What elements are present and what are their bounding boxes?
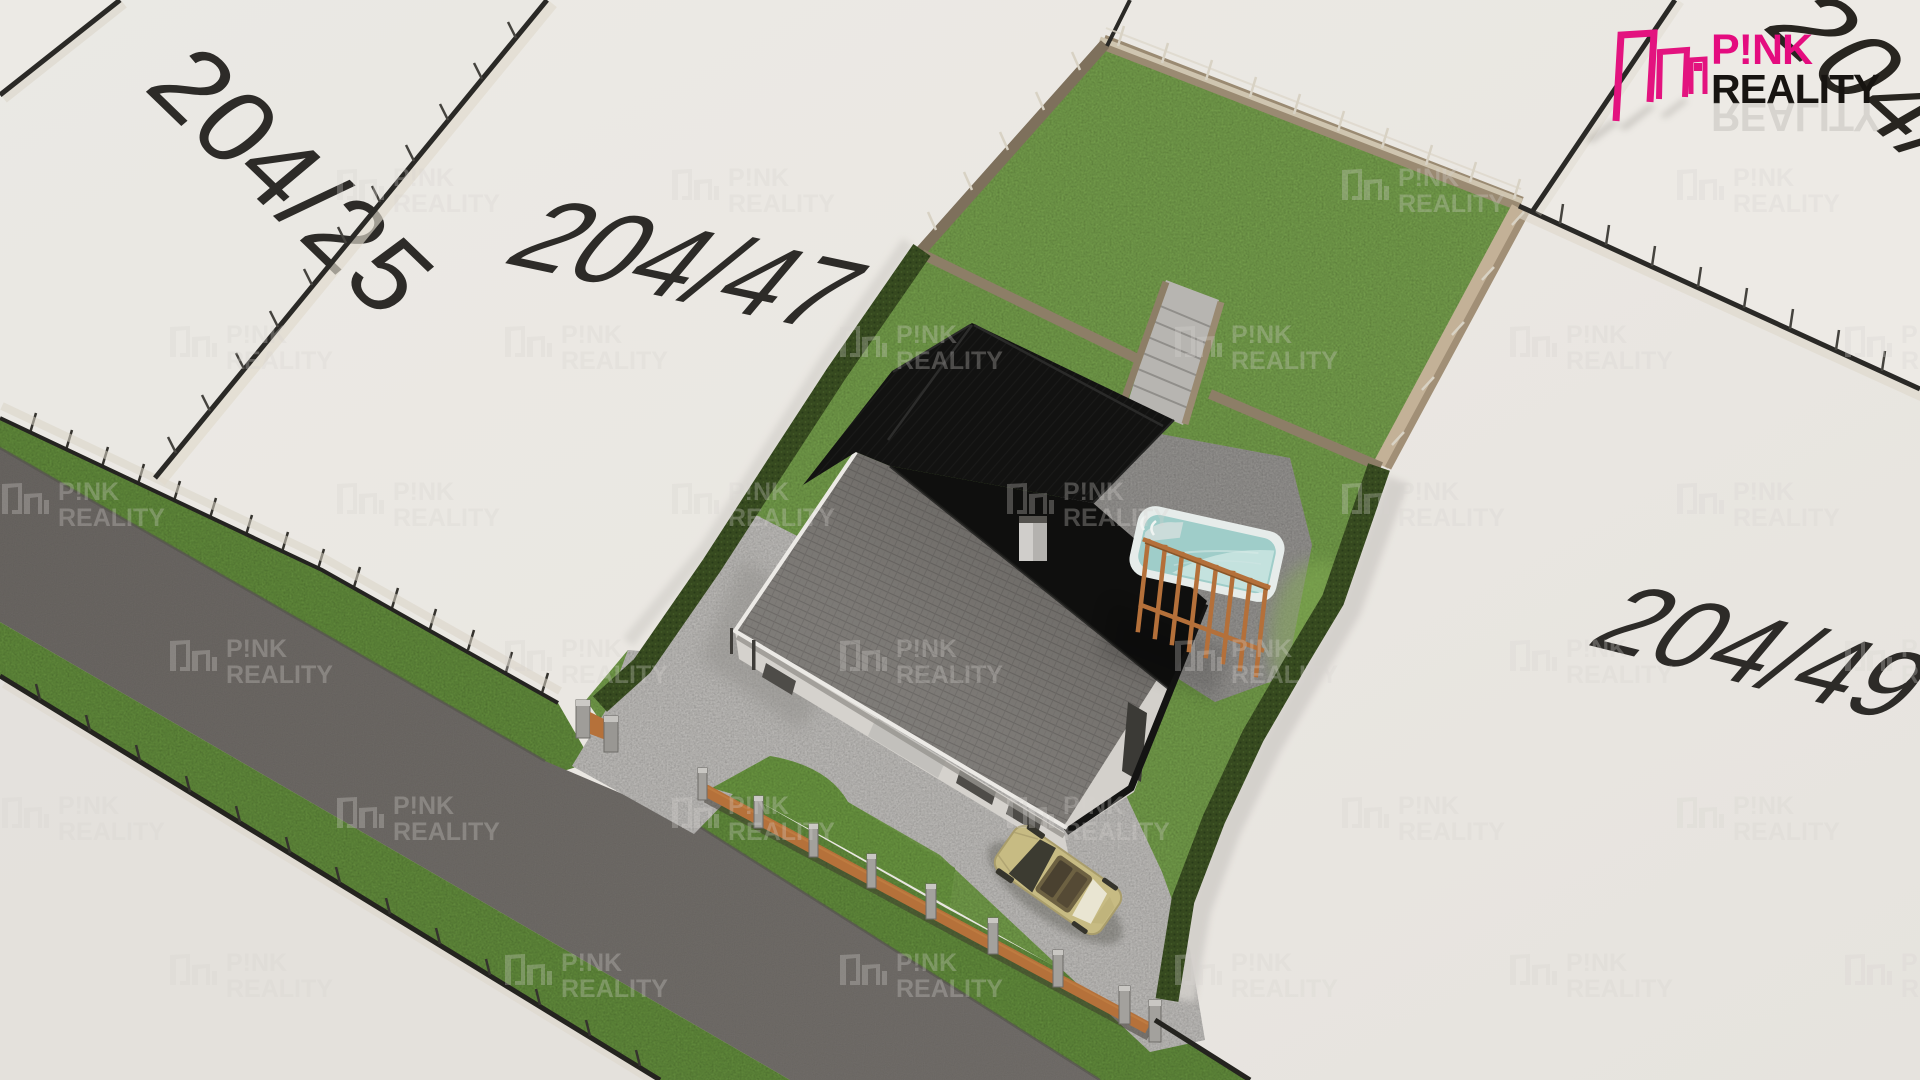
svg-text:REALITY: REALITY	[1711, 94, 1880, 140]
